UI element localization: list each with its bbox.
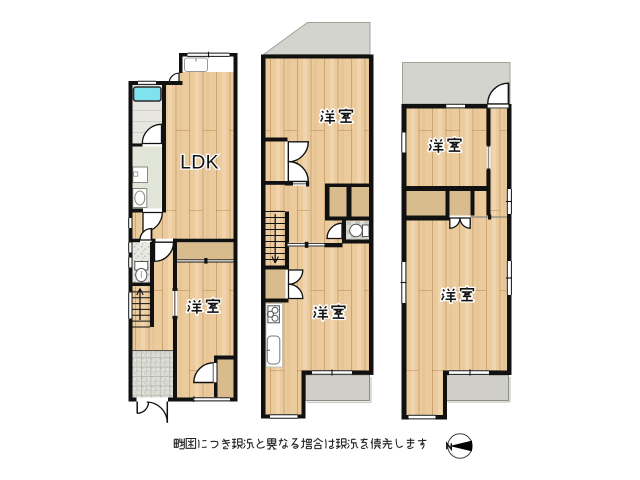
svg-text:LDK: LDK — [180, 152, 219, 174]
